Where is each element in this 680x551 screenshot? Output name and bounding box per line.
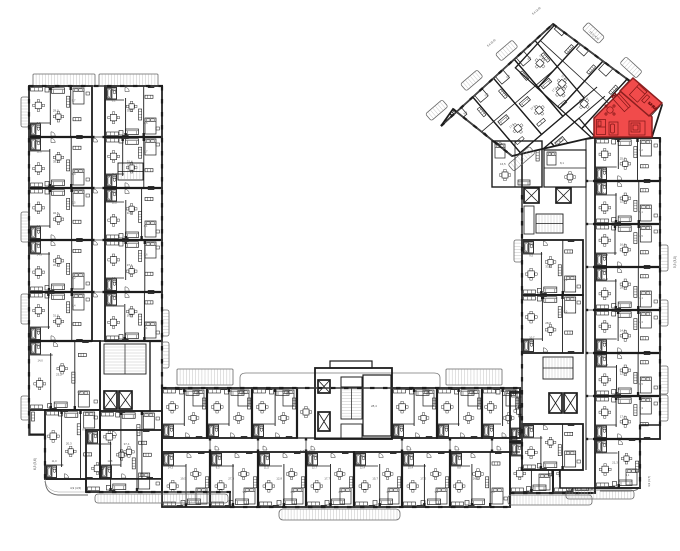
svg-text:7,6: 7,6 (564, 278, 568, 282)
svg-text:32,5: 32,5 (53, 211, 59, 215)
svg-text:6,0: 6,0 (291, 490, 295, 494)
svg-text:6,7: 6,7 (387, 490, 391, 494)
svg-text:9,3: 9,3 (639, 406, 643, 410)
svg-text:5,1: 5,1 (639, 210, 643, 214)
svg-text:9,5: 9,5 (529, 254, 533, 258)
svg-text:6,3 (3,2): 6,3 (3,2) (300, 449, 311, 453)
svg-text:5,6: 5,6 (144, 253, 148, 257)
svg-text:11,0: 11,0 (52, 459, 58, 463)
svg-text:11,3: 11,3 (112, 172, 118, 176)
svg-text:14,3: 14,3 (37, 253, 43, 257)
svg-text:28,4: 28,4 (371, 404, 377, 408)
svg-text:15,8: 15,8 (603, 253, 609, 257)
svg-text:15,4: 15,4 (408, 466, 414, 470)
svg-text:7,7: 7,7 (37, 121, 41, 125)
svg-text:17,2: 17,2 (420, 477, 426, 481)
svg-text:35,7: 35,7 (53, 160, 59, 164)
svg-text:11,8: 11,8 (37, 149, 43, 153)
svg-text:26,8: 26,8 (473, 477, 479, 481)
svg-text:6,3: 6,3 (603, 191, 607, 195)
svg-text:16,5: 16,5 (620, 243, 626, 247)
svg-text:14,5: 14,5 (620, 329, 626, 333)
svg-text:5,4: 5,4 (603, 339, 607, 343)
svg-text:3,5: 3,5 (72, 201, 76, 205)
svg-text:23,2: 23,2 (56, 373, 62, 377)
svg-text:33,6: 33,6 (545, 265, 551, 269)
svg-text:12,7: 12,7 (312, 466, 318, 470)
svg-text:28,8: 28,8 (545, 321, 551, 325)
svg-text:37,4: 37,4 (124, 442, 130, 446)
svg-text:6,3: 6,3 (491, 490, 495, 494)
svg-text:12,8: 12,8 (276, 477, 282, 481)
svg-text:6,3: 6,3 (216, 466, 220, 470)
svg-text:17,4: 17,4 (620, 415, 626, 419)
svg-text:4,9: 4,9 (112, 276, 116, 280)
svg-text:25,7: 25,7 (620, 157, 626, 161)
svg-text:11,2: 11,2 (112, 201, 118, 205)
svg-text:9,3: 9,3 (243, 490, 247, 494)
svg-text:17,7: 17,7 (324, 477, 330, 481)
svg-text:9,9: 9,9 (72, 172, 76, 176)
svg-text:6,5: 6,5 (603, 167, 607, 171)
svg-text:10,7: 10,7 (529, 336, 535, 340)
svg-text:37,1: 37,1 (127, 263, 133, 267)
svg-text:16,5: 16,5 (500, 162, 506, 166)
svg-text:9,0: 9,0 (564, 309, 568, 313)
svg-text:15,7: 15,7 (372, 477, 378, 481)
svg-text:7,3: 7,3 (600, 451, 604, 455)
svg-text:14,3: 14,3 (168, 466, 174, 470)
svg-text:6,6: 6,6 (37, 224, 41, 228)
svg-text:16,3: 16,3 (127, 314, 133, 318)
svg-text:27,8: 27,8 (228, 477, 234, 481)
svg-text:11,4: 11,4 (603, 277, 609, 281)
svg-text:4,3: 4,3 (639, 320, 643, 324)
svg-text:9,7: 9,7 (72, 98, 76, 102)
svg-text:19,5: 19,5 (180, 477, 186, 481)
svg-text:29,0: 29,0 (53, 109, 59, 113)
svg-text:4,1: 4,1 (77, 390, 81, 394)
svg-text:7,4: 7,4 (37, 326, 41, 330)
svg-text:8,1: 8,1 (112, 98, 116, 102)
svg-text:6,3: 6,3 (112, 304, 116, 308)
svg-text:3,2: 3,2 (639, 148, 643, 152)
svg-text:11,4: 11,4 (620, 200, 626, 204)
svg-text:6,3 (5,6): 6,3 (5,6) (33, 458, 37, 470)
svg-text:20,3: 20,3 (66, 442, 72, 446)
svg-text:12,8: 12,8 (620, 372, 626, 376)
svg-text:4,9 (4,7): 4,9 (4,7) (647, 476, 651, 487)
svg-text:29,2: 29,2 (620, 286, 626, 290)
svg-text:14,7: 14,7 (603, 363, 609, 367)
svg-text:11,9: 11,9 (127, 211, 133, 215)
svg-text:7,5: 7,5 (639, 234, 643, 238)
svg-text:31,8: 31,8 (53, 314, 59, 318)
svg-text:9,7: 9,7 (144, 149, 148, 153)
svg-text:8,2: 8,2 (72, 276, 76, 280)
svg-text:8,1: 8,1 (560, 161, 564, 165)
svg-text:21,3: 21,3 (612, 461, 618, 465)
svg-text:5,3 (3,0): 5,3 (3,0) (673, 256, 677, 268)
svg-text:9,1: 9,1 (626, 473, 630, 477)
svg-text:8,8: 8,8 (339, 490, 343, 494)
svg-text:12,4: 12,4 (360, 466, 366, 470)
svg-text:4,6: 4,6 (603, 425, 607, 429)
svg-text:32,2: 32,2 (53, 263, 59, 267)
svg-text:7,1: 7,1 (639, 296, 643, 300)
svg-text:4,9 (4,5): 4,9 (4,5) (70, 486, 81, 490)
svg-text:8,1: 8,1 (144, 224, 148, 228)
svg-text:9,1: 9,1 (435, 490, 439, 494)
svg-text:9,5: 9,5 (144, 121, 148, 125)
svg-text:11,5: 11,5 (264, 466, 270, 470)
svg-text:14,0: 14,0 (38, 359, 44, 363)
svg-text:8,8: 8,8 (457, 466, 461, 470)
svg-text:4,1: 4,1 (144, 326, 148, 330)
svg-text:8,5: 8,5 (639, 382, 643, 386)
svg-text:35,2: 35,2 (127, 109, 133, 113)
svg-text:8,4: 8,4 (72, 304, 76, 308)
